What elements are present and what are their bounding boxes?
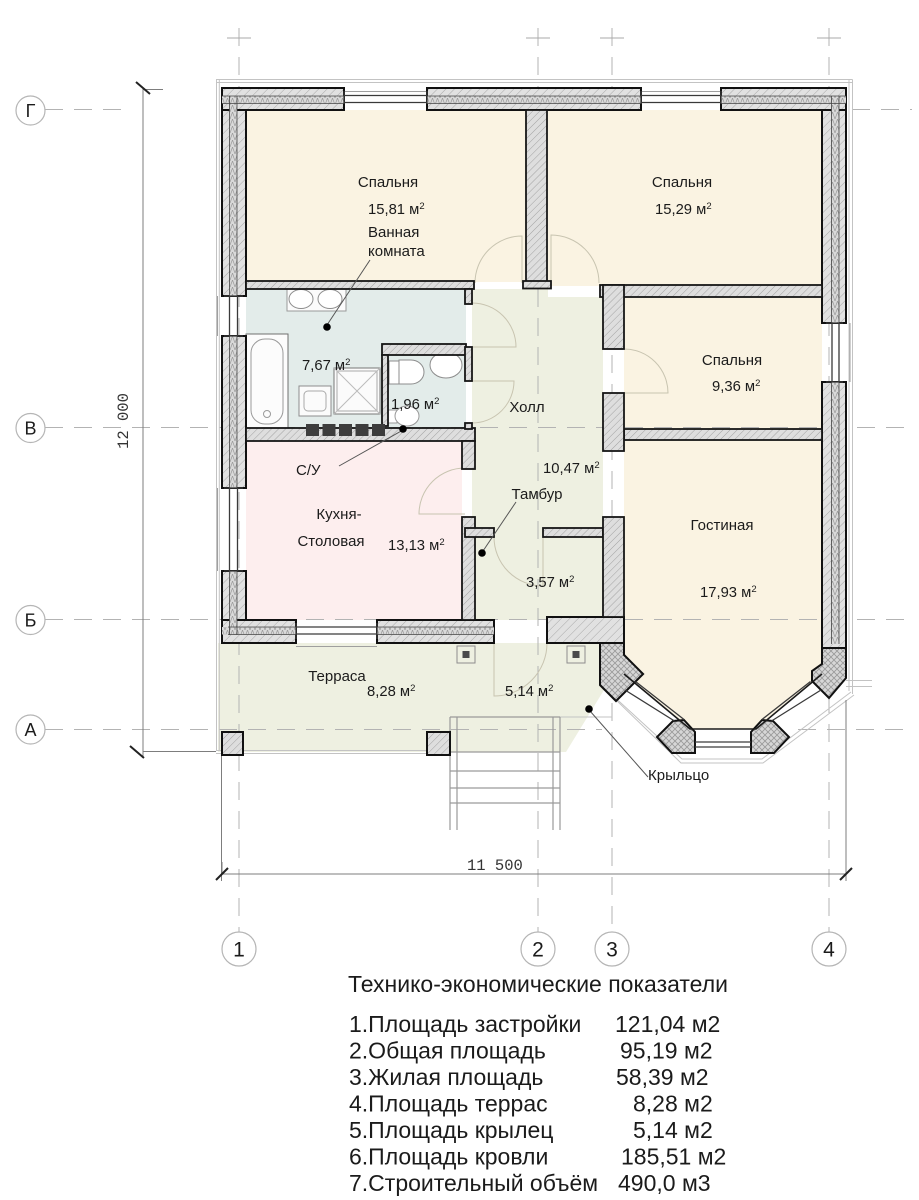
svg-text:Тамбур: Тамбур: [512, 486, 563, 503]
svg-text:Гостиная: Гостиная: [691, 517, 754, 534]
svg-text:9,36 м2: 9,36 м2: [712, 378, 760, 395]
svg-text:5,14 м2: 5,14 м2: [505, 683, 553, 700]
svg-text:185,51 м2: 185,51 м2: [621, 1144, 726, 1170]
svg-text:А: А: [24, 720, 36, 740]
svg-text:1,96 м2: 1,96 м2: [391, 396, 439, 413]
svg-text:Технико-экономические показате: Технико-экономические показатели: [348, 971, 728, 997]
svg-text:6.Площадь кровли: 6.Площадь кровли: [349, 1144, 548, 1170]
svg-text:Ванная: Ванная: [368, 224, 419, 241]
svg-text:3.Жилая площадь: 3.Жилая площадь: [349, 1064, 543, 1090]
svg-text:Терраса: Терраса: [308, 668, 366, 685]
svg-text:Кухня-: Кухня-: [316, 506, 361, 523]
svg-text:В: В: [24, 419, 36, 439]
svg-text:комната: комната: [368, 243, 425, 260]
svg-text:Г: Г: [26, 101, 36, 121]
svg-text:4.Площадь террас: 4.Площадь террас: [349, 1091, 548, 1117]
svg-text:1.Площадь застройки: 1.Площадь застройки: [349, 1011, 581, 1037]
svg-text:4: 4: [823, 939, 835, 962]
svg-text:13,13 м2: 13,13 м2: [388, 537, 445, 554]
svg-text:7.Строительный объём: 7.Строительный объём: [349, 1170, 598, 1196]
svg-text:8,28 м2: 8,28 м2: [367, 683, 415, 700]
svg-text:3,57 м2: 3,57 м2: [526, 574, 574, 591]
svg-text:Столовая: Столовая: [297, 533, 364, 550]
svg-text:1: 1: [233, 939, 245, 962]
svg-text:Крыльцо: Крыльцо: [648, 767, 709, 784]
svg-text:С/У: С/У: [296, 462, 321, 479]
svg-text:Спальня: Спальня: [358, 174, 418, 191]
svg-text:95,19 м2: 95,19 м2: [620, 1038, 713, 1064]
svg-text:12 000: 12 000: [115, 393, 133, 449]
svg-text:17,93 м2: 17,93 м2: [700, 584, 757, 601]
svg-text:3: 3: [606, 939, 618, 962]
svg-text:2.Общая площадь: 2.Общая площадь: [349, 1038, 546, 1064]
svg-text:8,28 м2: 8,28 м2: [633, 1091, 713, 1117]
svg-text:121,04 м2: 121,04 м2: [615, 1011, 720, 1037]
svg-text:5,14 м2: 5,14 м2: [633, 1117, 713, 1143]
svg-text:58,39 м2: 58,39 м2: [616, 1064, 709, 1090]
svg-text:15,81 м2: 15,81 м2: [368, 201, 425, 218]
svg-text:10,47 м2: 10,47 м2: [543, 460, 600, 477]
svg-text:7,67 м2: 7,67 м2: [302, 357, 350, 374]
svg-text:Спальня: Спальня: [702, 352, 762, 369]
svg-text:15,29 м2: 15,29 м2: [655, 201, 712, 218]
svg-text:2: 2: [532, 939, 544, 962]
svg-text:Холл: Холл: [509, 399, 544, 416]
svg-text:5.Площадь крылец: 5.Площадь крылец: [349, 1117, 553, 1143]
svg-text:Б: Б: [25, 611, 37, 631]
svg-text:Спальня: Спальня: [652, 174, 712, 191]
svg-text:490,0 м3: 490,0 м3: [618, 1170, 711, 1196]
svg-text:11 500: 11 500: [467, 857, 523, 875]
